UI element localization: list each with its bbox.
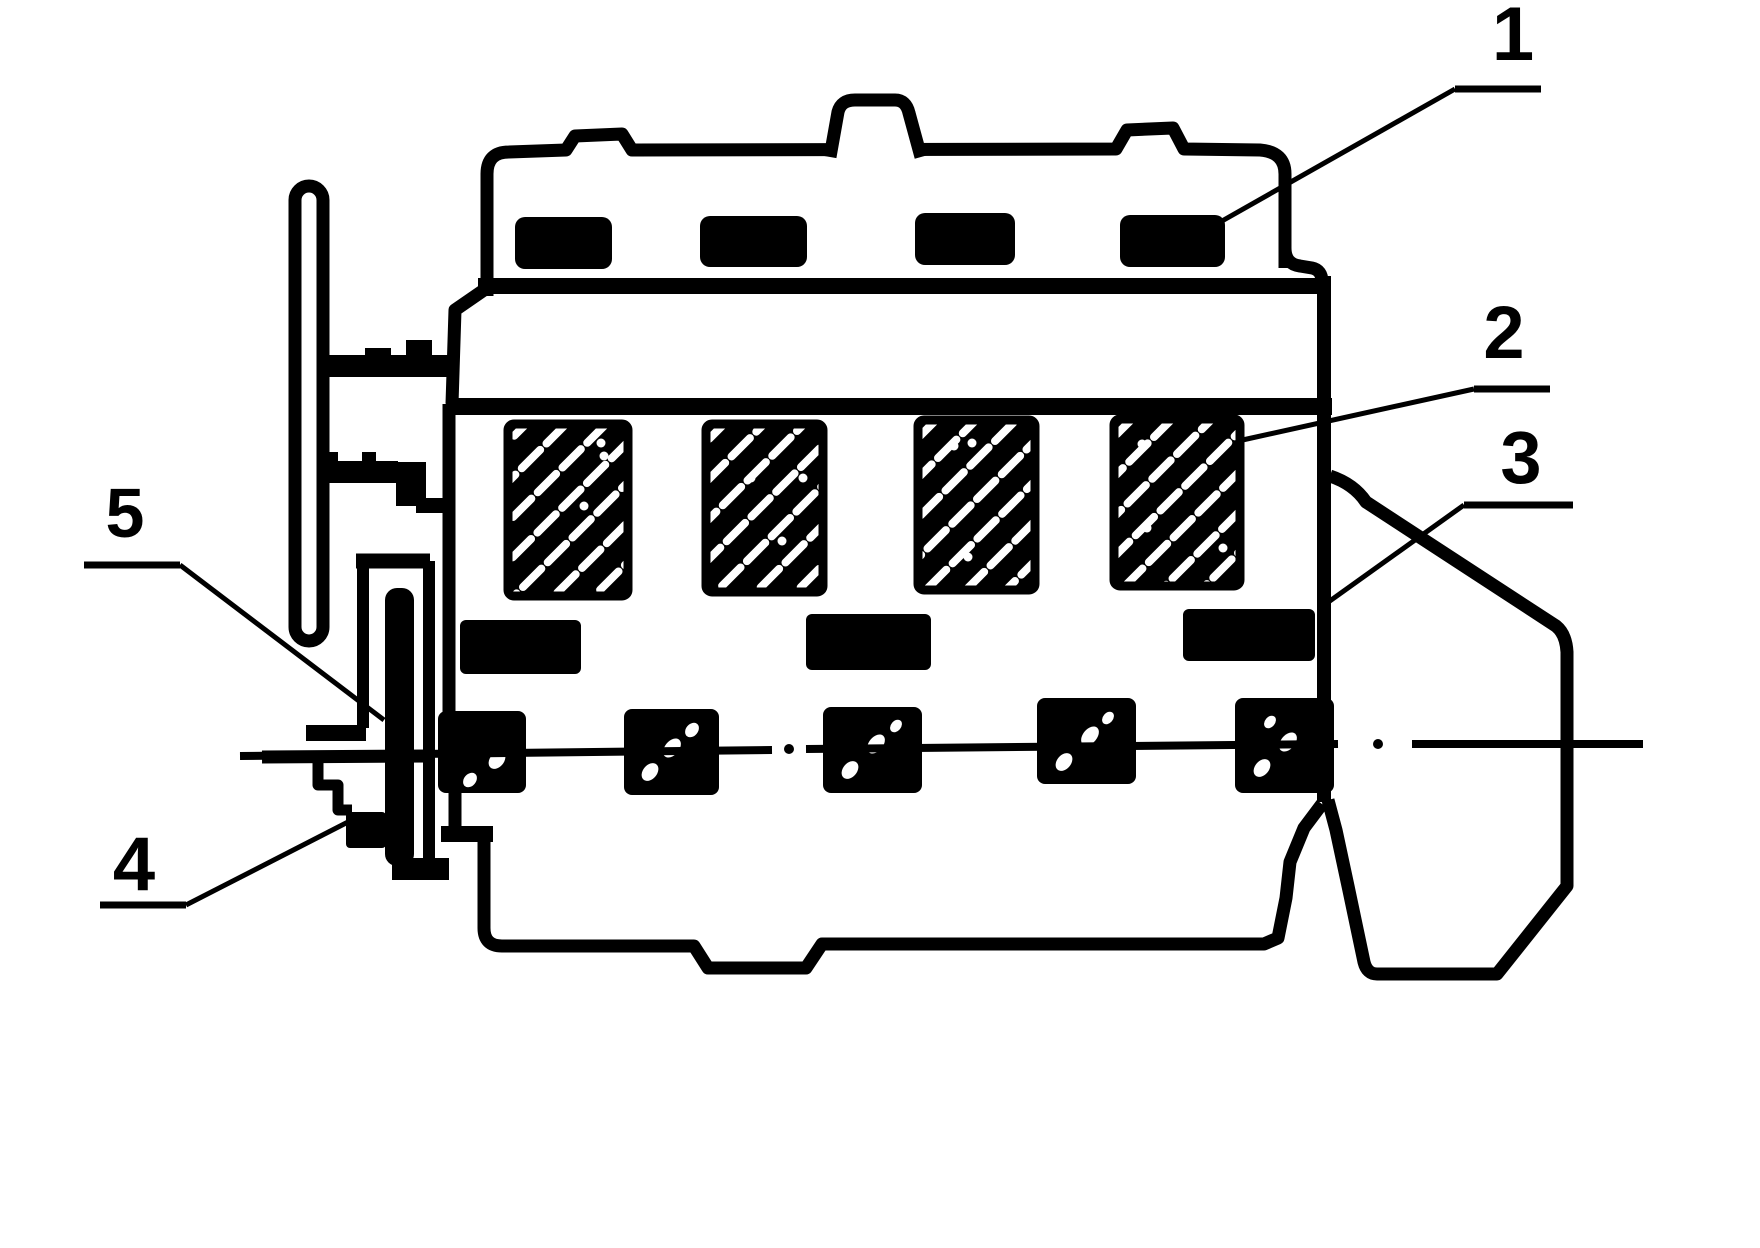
svg-text:1: 1: [1492, 0, 1534, 77]
svg-text:2: 2: [1483, 291, 1524, 374]
svg-text:4: 4: [113, 822, 155, 907]
svg-text:3: 3: [1500, 416, 1541, 499]
svg-text:5: 5: [106, 474, 145, 552]
